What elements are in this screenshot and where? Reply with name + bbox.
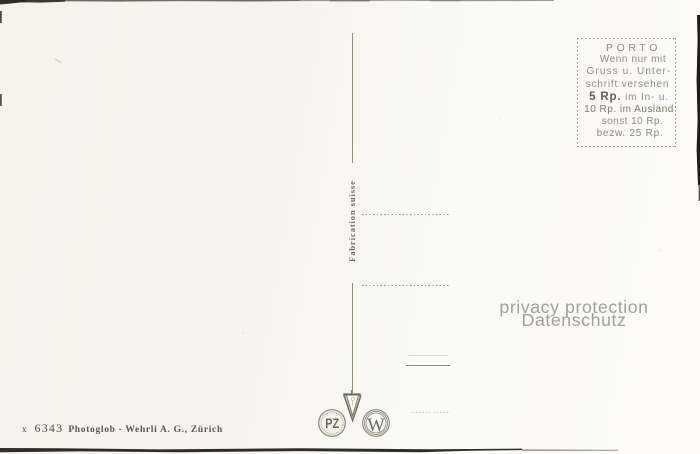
svg-text:PZ: PZ [325, 415, 339, 430]
svg-text:W: W [367, 415, 385, 436]
